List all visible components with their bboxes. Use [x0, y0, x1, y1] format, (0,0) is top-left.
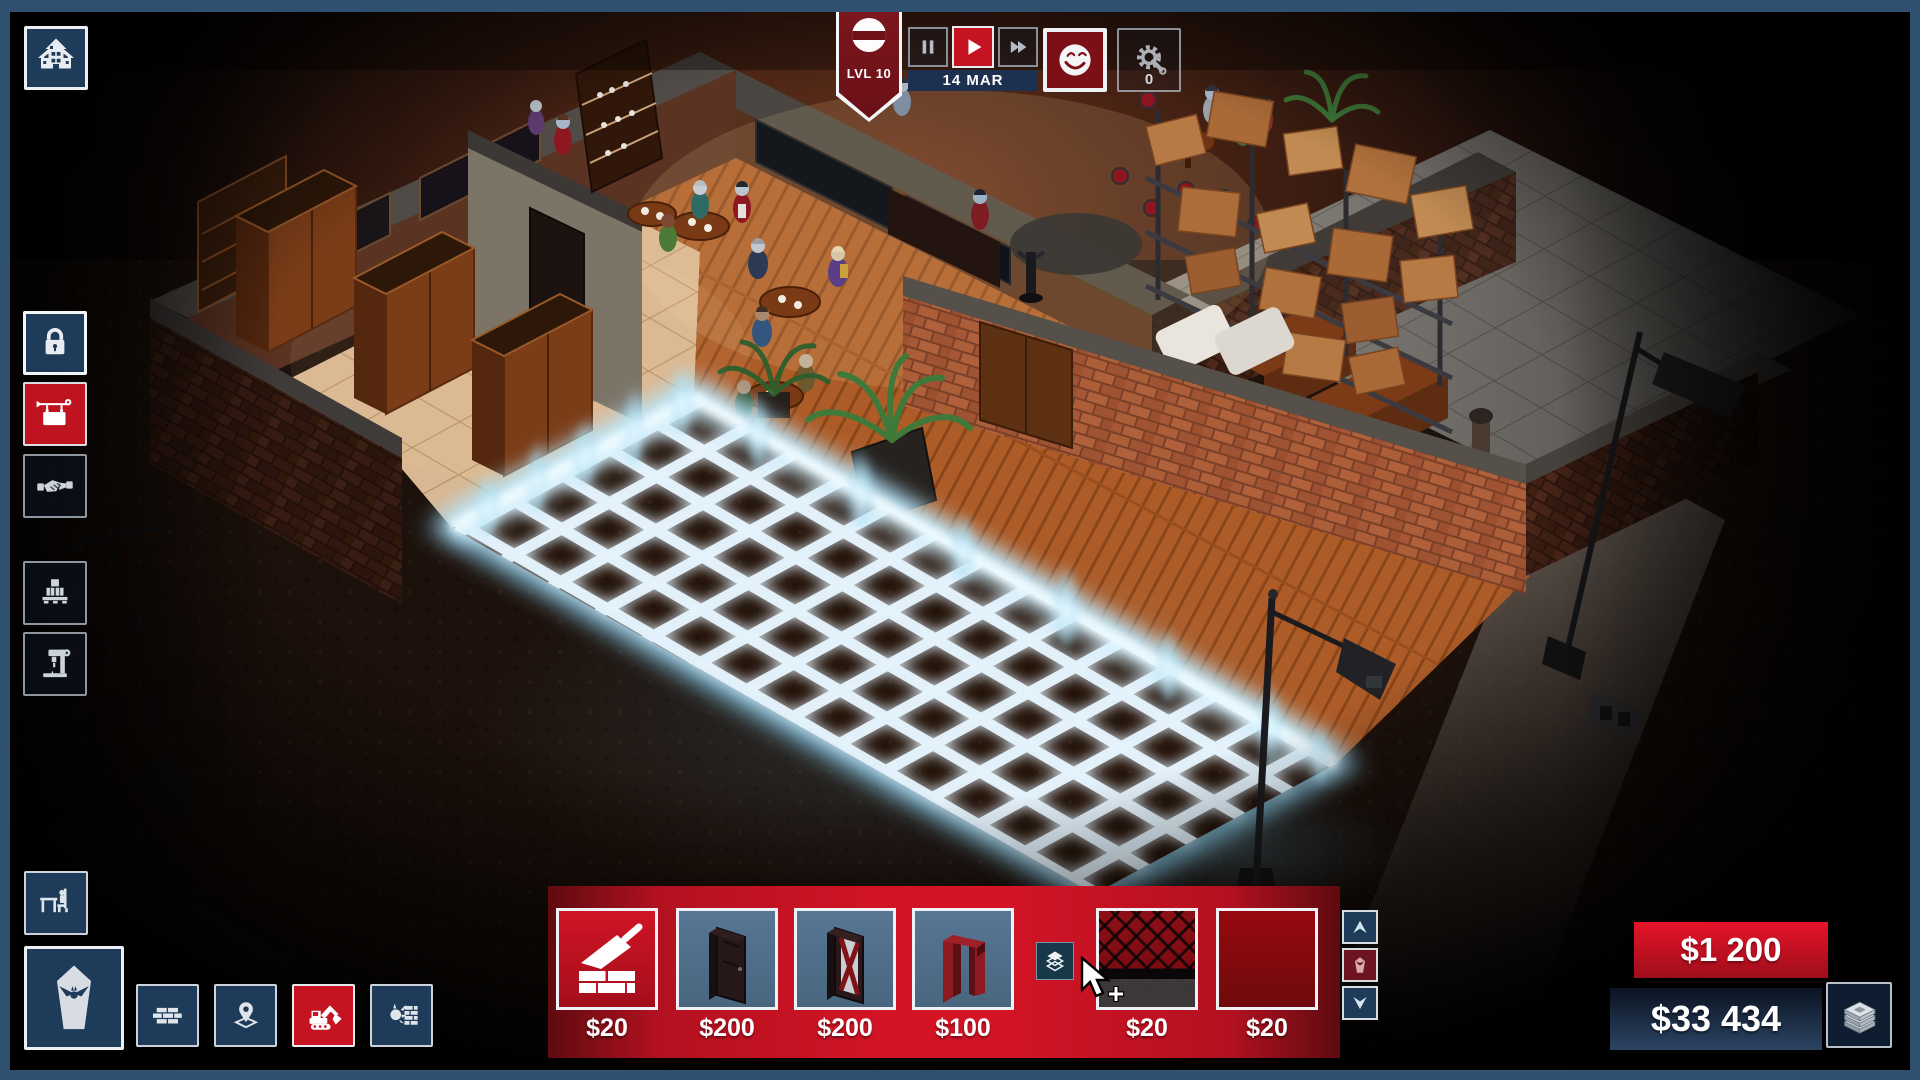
build-zones-button[interactable] — [214, 984, 277, 1047]
alerts-button[interactable]: 0 — [1117, 28, 1181, 92]
sidebar-item-production[interactable] — [23, 632, 87, 696]
red-carpet-swatch — [1219, 911, 1315, 1007]
padlock-icon — [35, 323, 75, 363]
coffin-bat-icon — [37, 957, 111, 1039]
build-walls-button[interactable] — [136, 984, 199, 1047]
window-frame-bottom — [0, 1070, 1920, 1080]
excavator-icon — [303, 995, 345, 1037]
toolbar-item-carpet-argyle[interactable] — [1096, 908, 1198, 1010]
sidebar-item-security[interactable] — [23, 311, 87, 375]
fast-forward-button[interactable] — [998, 27, 1038, 67]
handshake-icon — [34, 465, 76, 507]
layers-button[interactable] — [1036, 942, 1074, 980]
alerts-count: 0 — [1119, 71, 1179, 88]
doorway-sprite — [915, 911, 1011, 1007]
window-frame-left — [0, 0, 10, 1080]
build-excavate-button[interactable] — [292, 984, 355, 1047]
furniture-mode-button[interactable] — [24, 871, 88, 935]
toolbar-item-doorway[interactable] — [912, 908, 1014, 1010]
vampire-face-icon — [845, 12, 893, 64]
map-pin-icon — [226, 996, 266, 1036]
estate-button[interactable] — [24, 26, 88, 90]
drill-press-icon — [34, 643, 76, 685]
build-demolish-button[interactable] — [370, 984, 433, 1047]
arrow-down-icon — [1350, 991, 1370, 1015]
layers-icon — [1043, 945, 1067, 977]
hanging-sign-icon — [34, 393, 76, 435]
toolbar-item-carpet-red[interactable] — [1216, 908, 1318, 1010]
pause-button[interactable] — [908, 27, 948, 67]
play-button[interactable] — [952, 26, 994, 68]
toolbar-item-door-glazed[interactable] — [794, 908, 896, 1010]
price-label: $100 — [912, 1014, 1014, 1043]
haunted-house-icon — [32, 34, 80, 82]
smiley-icon — [1052, 37, 1098, 83]
cash-button[interactable] — [1826, 982, 1892, 1048]
level-label: LVL 10 — [847, 66, 891, 81]
income-popup: $1 200 — [1634, 922, 1828, 978]
window-frame-right — [1910, 0, 1920, 1080]
arrow-up-icon — [1350, 915, 1370, 939]
toolbar-scroll-down-button[interactable] — [1342, 986, 1378, 1020]
toolbar-scroll-up-button[interactable] — [1342, 910, 1378, 944]
price-label: $20 — [556, 1014, 658, 1043]
brick-wall-icon — [148, 996, 188, 1036]
coffin-small-icon — [1350, 952, 1370, 978]
table-chair-icon — [35, 882, 77, 924]
trowel-brick-icon — [559, 911, 655, 1007]
wrecking-ball-icon — [382, 996, 422, 1036]
coffin-mode-button[interactable] — [24, 946, 124, 1050]
price-label: $20 — [1096, 1014, 1198, 1043]
build-toolbar: $20 $200 $200 $100 $20 $20 — [548, 886, 1340, 1058]
pallet-boxes-icon — [34, 572, 76, 614]
sidebar-item-deals[interactable] — [23, 454, 87, 518]
price-label: $200 — [676, 1014, 778, 1043]
price-label: $20 — [1216, 1014, 1318, 1043]
toolbar-item-door-solid[interactable] — [676, 908, 778, 1010]
pause-icon — [916, 34, 940, 60]
toolbar-item-brick-wall[interactable] — [556, 908, 658, 1010]
glazed-door-sprite — [797, 911, 893, 1007]
game-viewport: LVL 10 14 MAR 0 — [0, 0, 1920, 1080]
balance-display: $33 434 — [1610, 988, 1822, 1050]
sidebar-item-supplies[interactable] — [23, 561, 87, 625]
sidebar-item-business-sign[interactable] — [23, 382, 87, 446]
toolbar-category-coffin-button[interactable] — [1342, 948, 1378, 982]
fast-forward-icon — [1006, 34, 1030, 60]
solid-door-sprite — [679, 911, 775, 1007]
price-label: $200 — [794, 1014, 896, 1043]
window-frame-top — [0, 0, 1920, 12]
argyle-carpet-swatch — [1099, 911, 1195, 1007]
money-stack-icon — [1834, 990, 1884, 1040]
mood-button[interactable] — [1043, 28, 1107, 92]
date-display: 14 MAR — [908, 70, 1038, 91]
play-icon — [960, 34, 986, 60]
